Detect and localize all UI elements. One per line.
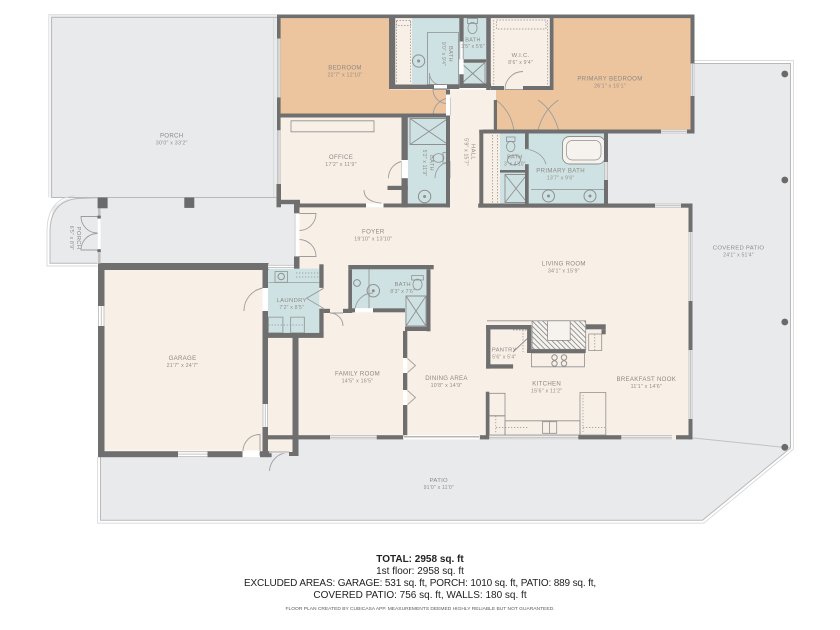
svg-text:9'0" x 9'4": 9'0" x 9'4": [440, 42, 446, 66]
svg-text:10'8" x 14'9": 10'8" x 14'9": [431, 383, 463, 389]
svg-text:26'1" x 15'1": 26'1" x 15'1": [594, 84, 626, 90]
svg-text:BATH: BATH: [465, 38, 480, 44]
svg-text:OFFICE: OFFICE: [329, 154, 353, 161]
svg-text:24'1" x 51'4": 24'1" x 51'4": [723, 253, 754, 259]
svg-text:19'10" x 13'10": 19'10" x 13'10": [354, 237, 392, 243]
svg-text:FOYER: FOYER: [362, 229, 385, 236]
svg-text:FAMILY ROOM: FAMILY ROOM: [335, 371, 380, 378]
svg-text:PRIMARY BEDROOM: PRIMARY BEDROOM: [577, 76, 642, 83]
svg-text:14'5" x 16'5": 14'5" x 16'5": [342, 379, 374, 385]
svg-text:BATH: BATH: [507, 155, 522, 161]
svg-text:17'2" x 11'9": 17'2" x 11'9": [325, 162, 356, 168]
svg-text:LAUNDRY: LAUNDRY: [277, 298, 307, 304]
svg-text:KITCHEN: KITCHEN: [532, 381, 561, 388]
svg-text:34'1" x 15'9": 34'1" x 15'9": [548, 269, 580, 275]
svg-text:21'7" x 24'7": 21'7" x 24'7": [167, 363, 199, 369]
svg-text:PRIMARY BATH: PRIMARY BATH: [536, 168, 585, 175]
svg-text:PORCH: PORCH: [160, 133, 184, 140]
svg-text:GARAGE: GARAGE: [169, 355, 197, 362]
svg-text:13'7" x 9'6": 13'7" x 9'6": [547, 176, 575, 182]
svg-text:6'5" x 8'9": 6'5" x 8'9": [68, 226, 74, 251]
svg-text:91'0" x 11'0": 91'0" x 11'0": [424, 485, 454, 491]
svg-text:3'5" x 5'6": 3'5" x 5'6": [461, 44, 485, 50]
svg-text:LIVING ROOM: LIVING ROOM: [542, 261, 586, 268]
svg-text:22'7" x 12'10": 22'7" x 12'10": [328, 73, 363, 79]
svg-text:PATIO: PATIO: [430, 478, 448, 484]
svg-text:DINING AREA: DINING AREA: [425, 375, 468, 382]
svg-text:5'2" x 11'9": 5'2" x 11'9": [421, 150, 427, 177]
svg-text:BATH: BATH: [394, 282, 410, 288]
svg-text:3' x 4'10": 3' x 4'10": [504, 162, 526, 168]
svg-text:HALL: HALL: [470, 144, 476, 160]
svg-text:PANTRY: PANTRY: [492, 348, 517, 354]
svg-text:BEDROOM: BEDROOM: [328, 65, 362, 72]
svg-text:BATH: BATH: [428, 155, 434, 171]
svg-text:8'3" x 7'6": 8'3" x 7'6": [390, 289, 415, 295]
svg-text:7'2" x 8'5": 7'2" x 8'5": [279, 305, 304, 311]
svg-text:11'1" x 14'6": 11'1" x 14'6": [631, 384, 662, 390]
svg-text:BREAKFAST NOOK: BREAKFAST NOOK: [616, 376, 676, 383]
svg-text:W.I.C.: W.I.C.: [512, 53, 530, 59]
svg-text:15'6" x 11'2": 15'6" x 11'2": [531, 389, 562, 395]
svg-text:5'6" x 5'4": 5'6" x 5'4": [492, 355, 516, 361]
svg-text:30'0" x 33'2": 30'0" x 33'2": [156, 141, 188, 147]
svg-text:BATH: BATH: [447, 46, 453, 62]
svg-text:5'9" x 15'7": 5'9" x 15'7": [463, 138, 469, 166]
svg-text:COVERED PATIO: COVERED PATIO: [713, 246, 765, 252]
svg-text:8'6" x 9'4": 8'6" x 9'4": [508, 60, 533, 66]
svg-text:PORCH: PORCH: [75, 227, 81, 250]
